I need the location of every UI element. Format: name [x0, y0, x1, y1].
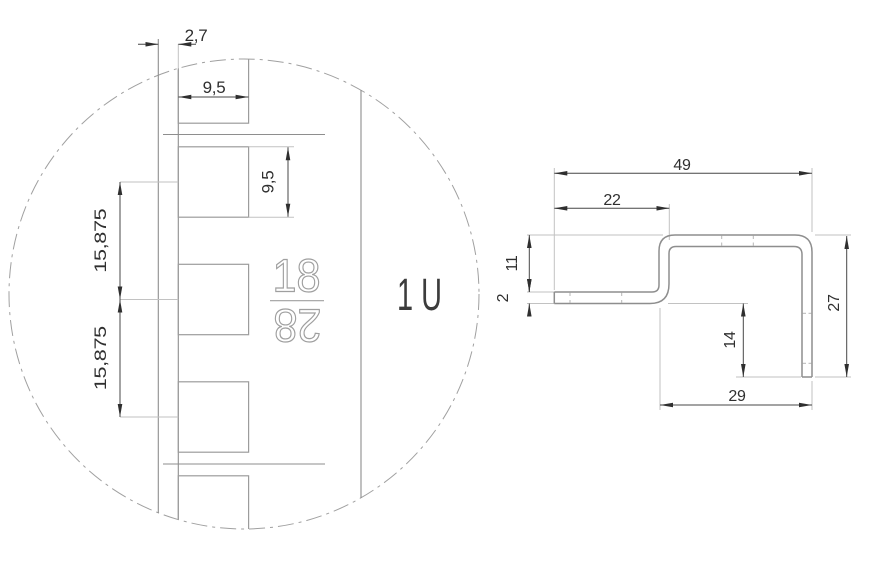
dim-front-flange: 22: [554, 192, 669, 209]
dim-rear-width: 29: [660, 388, 812, 405]
dim-hole-width: 9,5: [178, 78, 248, 97]
dim-edge-offset-text: 2,7: [185, 26, 208, 45]
dim-hole-width-text: 9,5: [203, 78, 226, 97]
stamp-number-bottom: 28: [274, 300, 322, 352]
technical-drawing-page: 2,7 9,5 9,5 15,875 15,875 18 2: [0, 0, 874, 584]
dim-step-height-text: 11: [504, 255, 521, 271]
bracket-profile: [554, 235, 812, 377]
profile-view: 49 22 11 2 14 27 29: [495, 157, 851, 410]
stamp-number-top: 18: [273, 249, 321, 301]
dim-step-height: 11: [504, 235, 529, 292]
unit-height-label: 1 U: [397, 269, 442, 320]
dim-thickness: 2: [495, 280, 529, 316]
mounting-hole-5: [178, 476, 248, 546]
mounting-hole-4: [178, 382, 248, 452]
dim-leg-depth: 27: [826, 236, 847, 377]
dim-overall-width-text: 49: [673, 157, 691, 174]
dim-overall-width: 49: [554, 157, 812, 174]
dim-pitch-bottom-text: 15,875: [91, 326, 110, 390]
dim-front-flange-text: 22: [603, 192, 621, 209]
dim-edge-offset: 2,7: [138, 26, 207, 45]
unit-number-stamp: 18 28: [270, 249, 324, 351]
dim-thickness-text: 2: [495, 293, 512, 302]
dim-pitch-top-text: 15,875: [91, 209, 110, 273]
dim-rear-width-text: 29: [728, 388, 746, 405]
mounting-holes: [178, 53, 248, 546]
dim-leg-inner: 14: [722, 304, 743, 378]
dim-hole-pitch: 15,875 15,875: [91, 182, 178, 417]
mounting-hole-2: [178, 147, 248, 217]
dim-leg-depth-text: 27: [826, 294, 843, 312]
bend-tick-marks: [570, 236, 812, 364]
profile-outer-contour: [554, 235, 812, 377]
dim-hole-height: 9,5: [249, 147, 294, 217]
rack-rail-technical-drawing: 2,7 9,5 9,5 15,875 15,875 18 2: [0, 0, 874, 584]
dim-leg-inner-text: 14: [722, 331, 739, 349]
mounting-hole-3: [178, 264, 248, 334]
dim-hole-height-text: 9,5: [259, 171, 278, 194]
detail-view: 2,7 9,5 9,5 15,875 15,875 18 2: [9, 26, 479, 546]
profile-inner-contour: [554, 247, 802, 378]
